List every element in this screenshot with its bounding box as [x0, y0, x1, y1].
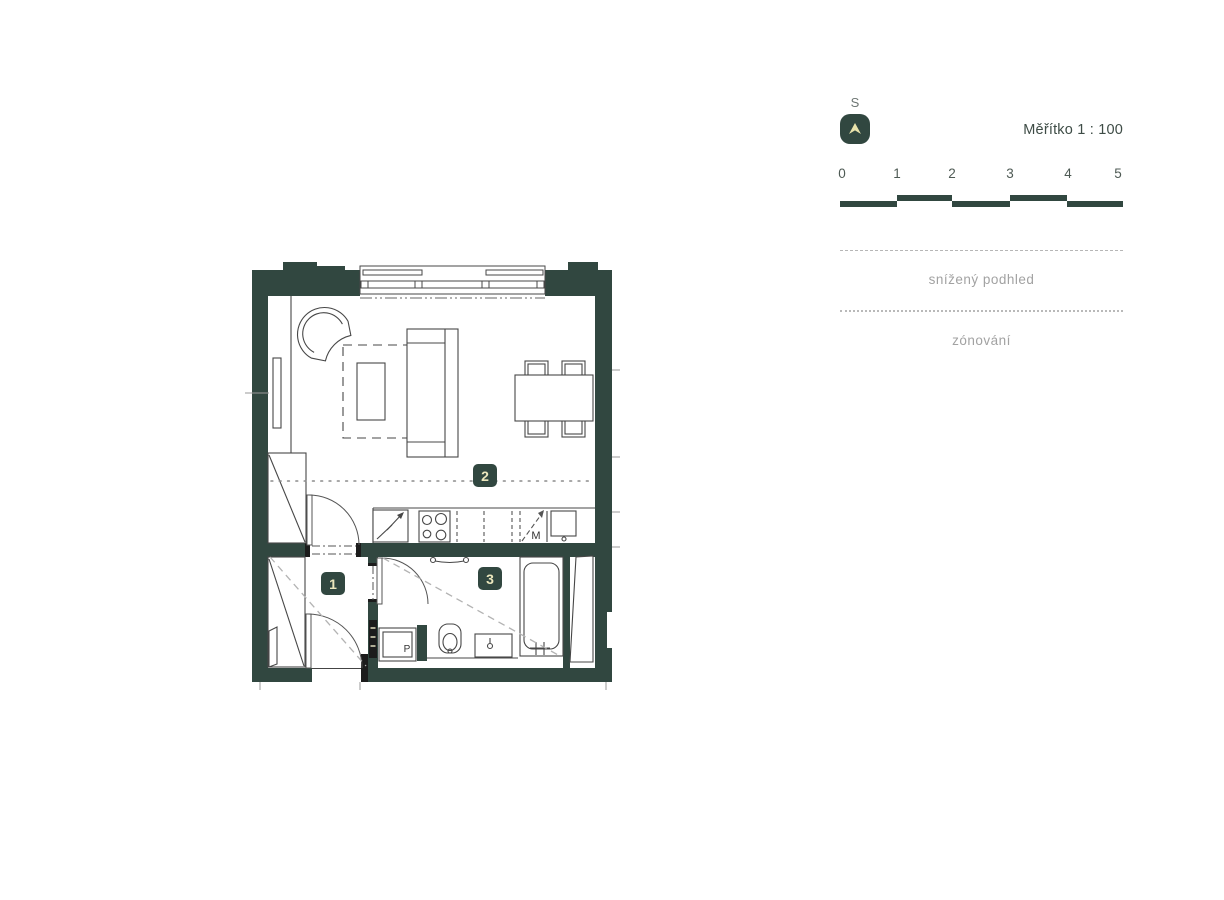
dining-table — [515, 375, 593, 421]
scale-title: Měřítko 1 : 100 — [1023, 122, 1123, 138]
cabinet-dividers — [457, 511, 520, 542]
legend-dotted-line — [840, 310, 1123, 312]
kitchen-sink — [551, 511, 576, 541]
scale-bar-segment — [1067, 201, 1123, 207]
door-entrance — [306, 614, 362, 668]
door-bathroom — [373, 558, 428, 604]
wall-tub-stub — [563, 557, 570, 668]
scale-bar-segment — [1010, 195, 1067, 201]
washing-machine — [379, 628, 416, 661]
sofa — [407, 329, 458, 457]
ceiling-dashed-hall — [270, 557, 366, 666]
scale-bar-segment — [897, 195, 952, 201]
cooktop — [419, 511, 450, 542]
wall-bath-stub — [417, 625, 427, 661]
entry-cabinet — [269, 627, 277, 667]
room-badge-2: 2 — [473, 464, 497, 487]
north-arrow-icon — [847, 122, 863, 136]
scale-tick-1: 1 — [893, 166, 901, 181]
bathtub — [520, 557, 563, 656]
wardrobe-hall — [268, 557, 305, 667]
scale-tick-5: 5 — [1114, 166, 1122, 181]
dining-set — [515, 361, 593, 437]
wall-middle-right — [360, 543, 612, 557]
room-badge-3: 3 — [478, 567, 502, 590]
wall-bottom — [252, 668, 612, 682]
legend-dashed-line — [840, 250, 1123, 251]
radiator — [273, 358, 281, 428]
coffee-table — [357, 363, 385, 420]
room-badge-1: 1 — [321, 572, 345, 595]
dishwasher-label: M — [531, 530, 540, 542]
scale-tick-2: 2 — [948, 166, 956, 181]
living-furniture — [286, 296, 593, 457]
armchair — [286, 296, 357, 367]
wall-left — [252, 270, 268, 682]
scale-bar-segment — [840, 201, 897, 207]
legend-label-lowered-ceiling: snížený podhled — [840, 272, 1123, 287]
door-living — [307, 495, 359, 554]
closet-living — [268, 453, 306, 543]
towel-radiator — [369, 620, 377, 658]
scale-tick-0: 0 — [838, 166, 846, 181]
tall-cabinet — [373, 510, 408, 542]
toilet — [439, 624, 461, 653]
wall-middle-left — [252, 543, 308, 557]
scale-tick-3: 3 — [1006, 166, 1014, 181]
kitchen — [373, 508, 595, 543]
towel-rail — [431, 558, 469, 563]
bath-sink — [475, 634, 512, 657]
washing-machine-label: P — [404, 644, 411, 655]
north-label: S — [840, 95, 870, 111]
legend-label-zoning: zónování — [840, 333, 1123, 348]
north-icon — [840, 114, 870, 144]
scale-bar-segment — [952, 201, 1010, 207]
floor-plan-page: M P 1 2 3 S Měřítko 1 : 100 0 1 2 3 4 5 … — [0, 0, 1224, 900]
shaft-niche — [570, 556, 593, 662]
wall-top-left — [252, 262, 360, 296]
scale-tick-4: 4 — [1064, 166, 1072, 181]
window — [360, 266, 545, 298]
